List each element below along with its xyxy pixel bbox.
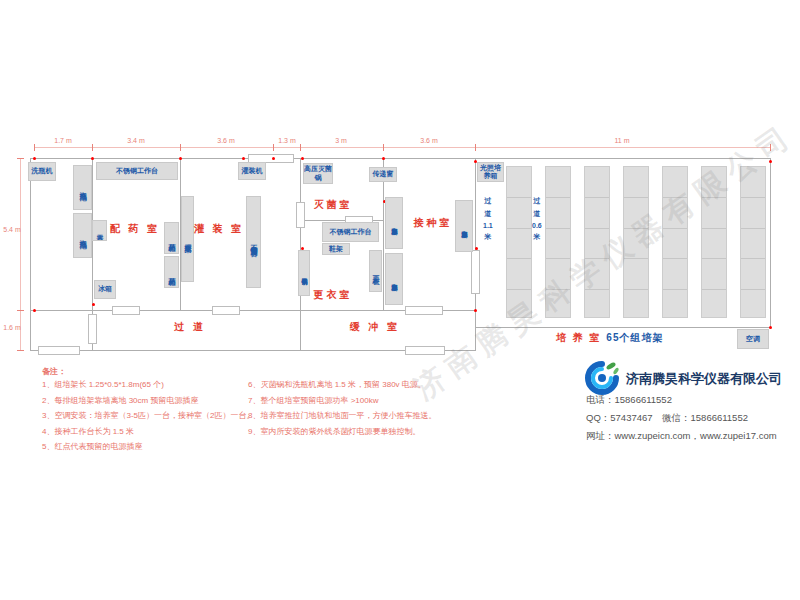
rack-shelf-line [546, 289, 570, 290]
soak-pool-1-box: 泡瓶池 [73, 165, 92, 210]
aisle-char: 道 [533, 209, 540, 219]
dimension-tick [34, 144, 35, 151]
rack-shelf-line [624, 197, 648, 198]
note-line: 7、整个组培室预留电源功率 >100kw [248, 395, 478, 406]
company-contact-line: 网址：www.zupeicn.com，www.zupei17.com [586, 430, 777, 443]
clean-bench-left-2-box: 双人水平超净工作台 [385, 253, 403, 305]
drawing-sheet: 洗瓶机泡瓶池泡瓶池不锈钢工作台天平台冰箱药品柜药品柜摆瓶架灌装机不锈钢灌装台高压… [0, 0, 800, 600]
room-label-changing: 更衣室 [306, 288, 360, 302]
note-line: 5、红点代表预留的电源插座 [42, 441, 252, 452]
dimension-tick [17, 310, 24, 311]
dimension-tick [92, 144, 93, 151]
culture-rack [584, 166, 610, 318]
power-socket-dot [179, 157, 182, 160]
wall [475, 327, 771, 328]
dimension-tick [273, 144, 274, 151]
dimension-tick [475, 144, 476, 151]
rack-shelf-line [585, 258, 609, 259]
medicine-cabinet-2-box: 药品柜 [164, 256, 179, 288]
room-label-sterilization: 灭菌室 [306, 198, 360, 212]
rack-shelf-line [741, 197, 765, 198]
rack-shelf-line [585, 228, 609, 229]
rack-shelf-line [624, 258, 648, 259]
rack-shelf-line [663, 258, 687, 259]
culture-rack-count: 65个组培架 [606, 332, 663, 343]
dimension-tick [383, 144, 384, 151]
aisle-char: 过 [533, 196, 540, 206]
rack-shelf-line [624, 289, 648, 290]
culture-rack [701, 166, 727, 318]
dimension-label: 1.3 m [271, 137, 303, 144]
rack-shelf-line [741, 289, 765, 290]
rack-shelf-line [702, 228, 726, 229]
filling-machine-box: 灌装机 [238, 162, 266, 180]
note-line: 9、室内所安装的紫外线杀菌灯电源要单独控制。 [248, 426, 478, 437]
aisle-char: 过 [484, 196, 491, 206]
aisle-char: 米 [484, 232, 491, 242]
fridge-box: 冰箱 [94, 280, 116, 299]
notes-section: 备注： 1、组培架长 1.25*0.5*1.8m(65 个)2、每排组培架靠墙离… [42, 366, 562, 380]
dimension-label: 5.4 m [2, 226, 22, 233]
clean-bench-left-1-box: 双人水平超净工作台 [385, 197, 403, 249]
culture-rack [545, 166, 571, 318]
door-opening [405, 346, 445, 355]
rack-shelf-line [507, 197, 531, 198]
culture-rack [740, 166, 766, 318]
dimension-label: 1.7 m [47, 137, 79, 144]
rack-shelf-line [546, 197, 570, 198]
room-label-dispensing: 配 药 室 [100, 222, 170, 236]
note-line: 2、每排组培架靠墙离地 30cm 预留电源插座 [42, 395, 252, 406]
aisle-1-1m-label: 过道1.1米 [483, 196, 493, 242]
door-opening [212, 306, 240, 315]
power-socket-dot [91, 157, 94, 160]
wall [30, 158, 771, 159]
pass-through-window-box: 传递窗 [369, 167, 397, 182]
dimension-tick [17, 350, 24, 351]
rack-shelf-line [741, 228, 765, 229]
door-opening [296, 202, 305, 228]
company-contact-line: 电话：15866611552 [586, 394, 777, 407]
rack-shelf-line [663, 197, 687, 198]
door-opening [471, 250, 480, 294]
dimension-tick [770, 144, 771, 151]
bottle-rack-box: 摆瓶架 [181, 196, 194, 282]
rack-shelf-line [585, 197, 609, 198]
aisle-char: 道 [484, 209, 491, 219]
dimension-label: 3.6 m [210, 137, 242, 144]
door-opening [405, 306, 443, 315]
note-line: 3、空调安装：培养室（3-5匹）一台，接种室（2匹）一台。 [42, 410, 252, 421]
dimension-label: 3 m [325, 137, 357, 144]
power-socket-dot [272, 157, 275, 160]
rack-shelf-line [702, 289, 726, 290]
dimension-line-left [20, 158, 21, 350]
power-socket-dot [474, 309, 477, 312]
room-label-buffer: 缓 冲 室 [340, 320, 410, 334]
ss-workbench-mid-box: 不锈钢工作台 [322, 222, 379, 242]
autoclave-box: 高压灭菌锅 [303, 163, 333, 184]
power-socket-dot [92, 303, 95, 306]
notes-column-left: 1、组培架长 1.25*0.5*1.8m(65 个)2、每排组培架靠墙离地 30… [42, 379, 252, 457]
dimension-label: 1.6 m [2, 324, 22, 331]
wall [770, 158, 771, 328]
company-logo [584, 360, 620, 396]
company-name: 济南腾昊科学仪器有限公司 [626, 370, 782, 388]
dimension-line-top [34, 147, 770, 148]
culture-rack [623, 166, 649, 318]
air-conditioner-box: 空调 [737, 329, 769, 349]
door-opening [38, 346, 80, 355]
power-socket-dot [242, 157, 245, 160]
rack-shelf-line [546, 258, 570, 259]
dimension-tick [180, 144, 181, 151]
note-line: 8、培养室推拉门地轨和地面一平，方便小推车推送。 [248, 410, 478, 421]
dimension-label: 11 m [606, 137, 638, 144]
rack-shelf-line [585, 289, 609, 290]
rack-shelf-line [507, 228, 531, 229]
company-contact-lines: 电话：15866611552QQ：57437467 微信：15866611552… [586, 394, 777, 448]
culture-rack [662, 166, 688, 318]
rack-shelf-line [507, 289, 531, 290]
door-opening [112, 306, 140, 315]
wall [30, 158, 31, 351]
room-label-culture: 培 养 室 65个组培架 [556, 331, 663, 345]
note-line: 6、灭菌锅和洗瓶机离地 1.5 米，预留 380v 电源。 [248, 379, 478, 390]
rack-shelf-line [741, 258, 765, 259]
aisle-char: 米 [533, 232, 540, 242]
rack-shelf-line [507, 258, 531, 259]
note-line: 1、组培架长 1.25*0.5*1.8m(65 个) [42, 379, 252, 390]
power-socket-dot [769, 160, 772, 163]
room-label-inoculation: 接种室 [403, 216, 463, 230]
power-socket-dot [769, 326, 772, 329]
notes-title: 备注： [42, 366, 562, 377]
room-label-corridor: 过 道 [140, 320, 240, 334]
note-line: 4、接种工作台长为 1.5 米 [42, 426, 252, 437]
aisle-0-6m-label: 过道0.6米 [532, 196, 542, 242]
soak-pool-2-box: 泡瓶池 [73, 213, 92, 258]
aisle-char: 1.1 [483, 222, 493, 229]
power-socket-dot [475, 247, 478, 250]
aisle-char: 0.6 [532, 222, 542, 229]
rack-shelf-line [702, 258, 726, 259]
shoe-rack-box: 鞋架 [322, 243, 350, 255]
floor-plan: 洗瓶机泡瓶池泡瓶池不锈钢工作台天平台冰箱药品柜药品柜摆瓶架灌装机不锈钢灌装台高压… [0, 0, 800, 600]
dimension-label: 3.6 m [413, 137, 445, 144]
culture-rack [506, 166, 532, 318]
wardrobe-box: 更衣柜 [369, 250, 382, 292]
rack-shelf-line [624, 228, 648, 229]
power-socket-dot [382, 157, 385, 160]
door-opening [88, 314, 97, 344]
bottle-washer-box: 洗瓶机 [28, 162, 56, 181]
dimension-tick [300, 144, 301, 151]
notes-column-right: 6、灭菌锅和洗瓶机离地 1.5 米，预留 380v 电源。7、整个组培室预留电源… [248, 379, 478, 441]
light-incubator-box: 光照培养箱 [477, 162, 504, 182]
rack-shelf-line [663, 289, 687, 290]
rack-shelf-line [702, 197, 726, 198]
rack-shelf-line [663, 228, 687, 229]
power-socket-dot [33, 309, 36, 312]
company-contact-line: QQ：57437467 微信：15866611552 [586, 412, 777, 425]
power-socket-dot [301, 157, 304, 160]
dimension-tick [17, 158, 24, 159]
room-label-filling: 灌 装 室 [188, 222, 250, 236]
ss-workbench-top-box: 不锈钢工作台 [96, 162, 178, 180]
rack-shelf-line [546, 228, 570, 229]
dimension-label: 3.4 m [120, 137, 152, 144]
power-socket-dot [33, 157, 36, 160]
ss-filling-bench-box: 不锈钢灌装台 [246, 196, 261, 288]
